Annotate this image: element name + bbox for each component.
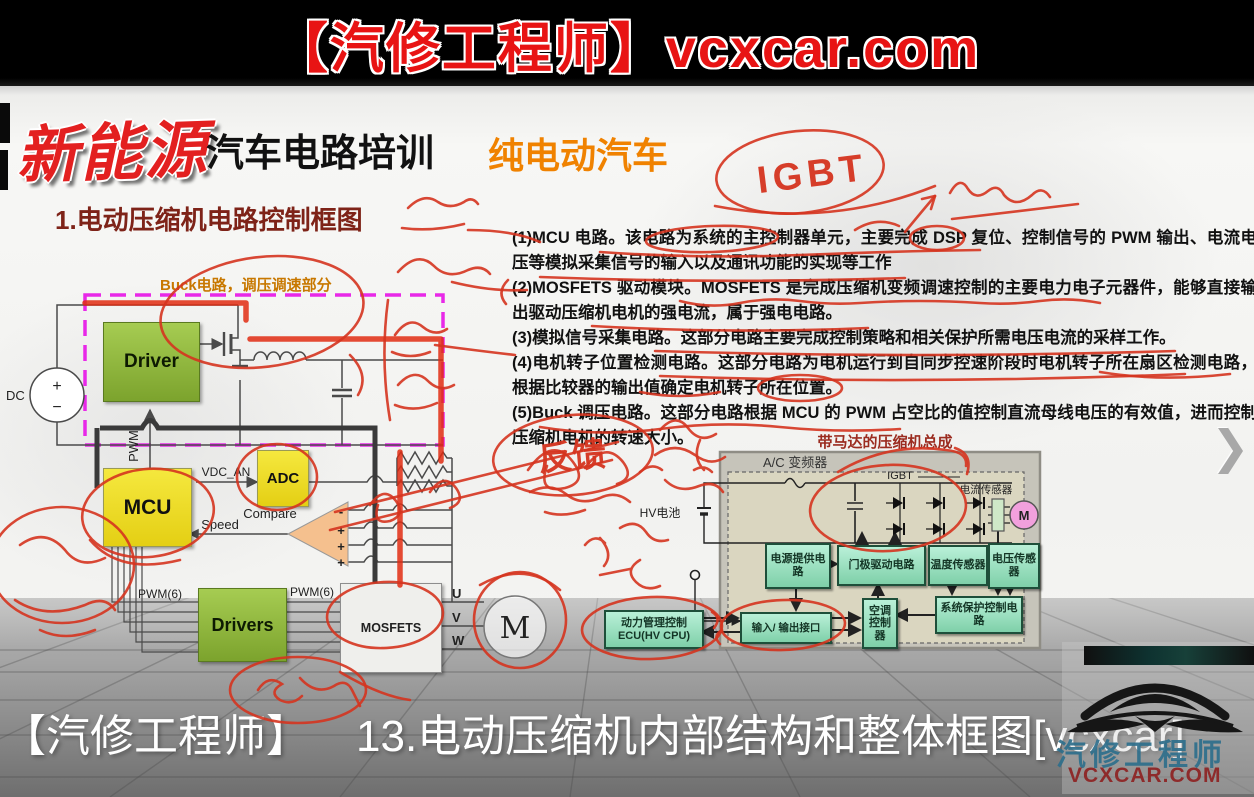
current-sensor-label: 电流传感器 [960,483,1013,496]
compare-label: Compare [243,506,296,521]
video-caption: 【汽修工程师】 13.电动压缩机内部结构和整体框图[vcxcar] [2,700,1185,764]
system-protection-box: 系统保护控制电路 [935,596,1023,634]
drivers-box: Drivers [198,588,287,662]
description-block: (1)MCU 电路。该电路为系统的主控制器单元，主要完成 DSP 复位、控制信号… [512,226,1254,451]
pm-ecu-line2: ECU(HV CPU) [618,630,690,643]
edge-mark [0,150,8,190]
caption-channel: 【汽修工程师】 [2,700,310,764]
control-block-diagram: DC + − Buck电路，调压调速部分 PWM VDC_AN Speed Co… [0,250,580,705]
topic-tag: 纯电动汽车 [488,127,668,179]
comparator-plus: + [337,555,345,570]
compressor-assembly-diagram: 带马达的压缩机总成 A/C 变频器 HV电池 IGBT 电流传感器 M 电源提供… [600,425,1075,680]
pwm6-right-label: PWM(6) [290,585,334,599]
brand-title: 新能源 [14,99,209,196]
temp-sensor-box: 温度传感器 [928,545,988,586]
dc-minus: − [52,399,61,416]
vcxcar-logo: 汽修工程师 VCXCAR.COM [1056,638,1254,797]
phase-v-label: V [452,610,461,625]
video-frame: 【汽修工程师】vcxcar.com 新能源 汽车电路培训 纯电动汽车 1.电动压… [0,0,1254,797]
assembly-title: 带马达的压缩机总成 [817,433,952,451]
buck-region-label: Buck电路，调压调速部分 [160,276,332,294]
motor-label: M [500,611,531,646]
comparator-minus: - [339,504,343,519]
current-sensor-symbol [992,499,1004,531]
speed-label: Speed [201,517,239,532]
io-interface-box: 输入/ 输出接口 [740,612,832,644]
pwm6-left-label: PWM(6) [138,587,182,601]
ac-controller-box: 空调控制器 [862,598,898,649]
inverter-label: A/C 变频器 [763,455,827,470]
comparator-plus: + [337,539,345,554]
voltage-sensor-box: 电压传感器 [988,543,1040,589]
pm-ecu-box: 动力管理控制 ECU(HV CPU) [604,610,704,649]
top-banner: 【汽修工程师】vcxcar.com [0,0,1254,86]
mosfets-box: MOSFETS [340,583,442,673]
logo-site: VCXCAR.COM [1068,764,1222,788]
dc-plus: + [52,378,61,395]
car-icon [1064,654,1246,740]
mcu-box: MCU [103,468,192,547]
pm-ecu-line1: 动力管理控制 [621,617,687,630]
hv-battery-label: HV电池 [640,506,681,520]
dc-label: DC [6,388,25,403]
point-4: (4)电机转子位置检测电路。这部分电路为电机运行到自同步控速阶段时电机转子所在扇… [512,351,1254,401]
edge-mark [0,103,10,143]
phase-w-label: W [452,633,465,648]
section-heading: 1.电动压缩机电路控制框图 [55,200,363,237]
compressor-motor-label: M [1019,508,1030,523]
point-2: (2)MOSFETS 驱动模块。MOSFETS 是完成压缩机变频调速控制的主要电… [512,276,1254,326]
power-supply-box: 电源提供电路 [765,543,831,589]
course-title: 汽车电路培训 [206,122,434,177]
banner-title: 【汽修工程师】vcxcar.com [274,4,980,83]
pwm-label: PWM [126,430,141,462]
igbt-label: IGBT [887,470,913,482]
point-3: (3)模拟信号采集电路。这部分电路主要完成控制策略和相关保护所需电压电流的采样工… [512,326,1254,351]
comparator-plus: + [337,523,345,538]
vdc-an-label: VDC_AN [202,465,251,479]
driver-box: Driver [103,322,200,402]
next-button-icon[interactable]: ❯ [1211,420,1250,474]
adc-box: ADC [257,450,309,507]
phase-u-label: U [452,586,461,601]
gate-drive-box: 门极驱动电路 [837,545,926,586]
point-1: (1)MCU 电路。该电路为系统的主控制器单元，主要完成 DSP 复位、控制信号… [512,226,1254,276]
